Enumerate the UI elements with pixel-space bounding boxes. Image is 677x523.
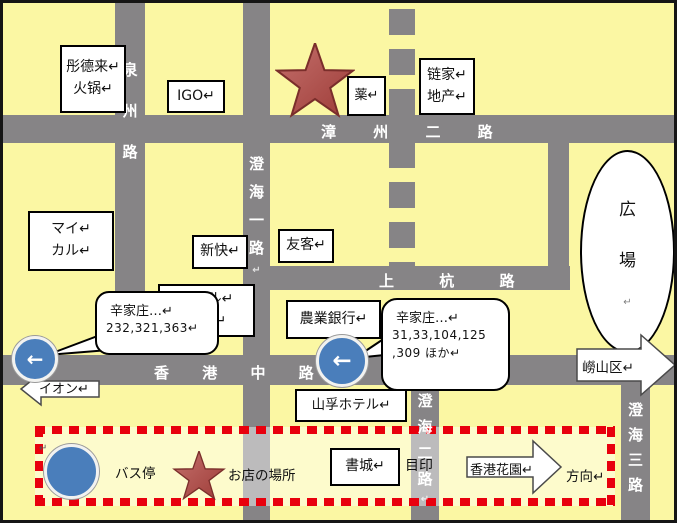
legend-bus-stop-label: バス停 xyxy=(115,462,156,482)
place-lianjia-realestate: 链家↵ 地产↵ xyxy=(419,58,475,115)
legend-shop-star xyxy=(171,451,227,501)
legend-border-right xyxy=(607,427,615,506)
aeon-arrow-label: イオン↵ xyxy=(39,378,89,397)
place-label: 彤德来↵ xyxy=(66,57,120,79)
bus-routes-bubble-left: 辛家庄…↵ 232,321,363↵ xyxy=(95,291,219,355)
place-label: マイ↵ xyxy=(51,219,91,241)
place-label: カル↵ xyxy=(51,241,91,263)
road-label-zhangzhou-2: 漳 州 二 路 xyxy=(321,121,509,142)
place-igo: IGO↵ xyxy=(167,80,225,113)
place-shinkai: 新快↵ xyxy=(192,235,248,269)
hk-garden-arrow-label: 香港花園↵ xyxy=(470,459,533,478)
bubble-routes: 232,321,363↵ xyxy=(106,321,217,335)
place-label: 地产↵ xyxy=(427,87,467,109)
road-label-chenghai-2: 澄海二路↵ xyxy=(411,390,439,505)
legend-border-left xyxy=(35,427,43,506)
place-label: 薬↵ xyxy=(355,86,379,106)
bubble-title: 辛家庄…↵ xyxy=(110,300,217,319)
bus-routes-bubble-right: 辛家庄…↵ 31,33,104,125 ,309 ほか↵ xyxy=(381,298,510,391)
place-label: 書城↵ xyxy=(345,456,385,478)
place-yuke: 友客↵ xyxy=(278,229,334,263)
bubble-routes: ,309 ほか↵ xyxy=(392,344,508,361)
left-arrow-icon: ← xyxy=(27,347,44,371)
direction-label: 方向↵ xyxy=(566,465,604,485)
place-label: 火锅↵ xyxy=(73,79,113,101)
road-connector-vertical xyxy=(548,142,569,270)
map-canvas: 泉州路 澄海一路↵ 漳 州 二 路 上 杭 路 香 港 中 路 澄海二路↵ 澄海… xyxy=(0,0,677,523)
place-label: 新快↵ xyxy=(200,241,240,263)
left-arrow-icon: ← xyxy=(332,348,351,374)
legend-bus-stop-icon xyxy=(44,444,99,499)
place-plaza-oval: 広場↵ xyxy=(580,150,675,353)
road-label-shanghang: 上 杭 路 xyxy=(379,270,534,291)
shop-location-star xyxy=(275,43,355,119)
legend-border-top xyxy=(35,426,615,434)
bus-stop-icon-west: ← xyxy=(12,336,58,382)
place-mycal: マイ↵ カル↵ xyxy=(28,211,114,271)
place-label: IGO↵ xyxy=(177,86,215,108)
return-mark: ↵ xyxy=(39,443,47,454)
place-tongdelai-hotpot: 彤德来↵ 火锅↵ xyxy=(60,45,126,113)
legend-shop-location-label: お店の場所 xyxy=(228,464,296,484)
road-chenghai-2-lu-dashed-upper xyxy=(389,9,415,116)
road-chenghai-2-lu-dashed-lower xyxy=(389,142,415,268)
bubble-title: 辛家庄…↵ xyxy=(396,307,508,326)
road-label-chenghai-3: 澄海三路 xyxy=(621,399,650,495)
legend-border-bottom xyxy=(35,498,615,506)
place-label: 山孚ホテル↵ xyxy=(312,395,391,416)
place-label: 友客↵ xyxy=(286,235,326,257)
bubble-routes: 31,33,104,125 xyxy=(392,328,508,342)
place-shanfu-hotel: 山孚ホテル↵ xyxy=(295,389,407,422)
road-label-hongkong-middle: 香 港 中 路 xyxy=(154,362,328,383)
bus-stop-icon-center: ← xyxy=(316,335,368,387)
laoshan-arrow-label: 嶗山区↵ xyxy=(582,356,634,376)
place-label: 链家↵ xyxy=(427,65,467,87)
place-book-city: 書城↵ xyxy=(330,448,400,486)
legend-landmark-label: 目印 xyxy=(405,455,433,475)
